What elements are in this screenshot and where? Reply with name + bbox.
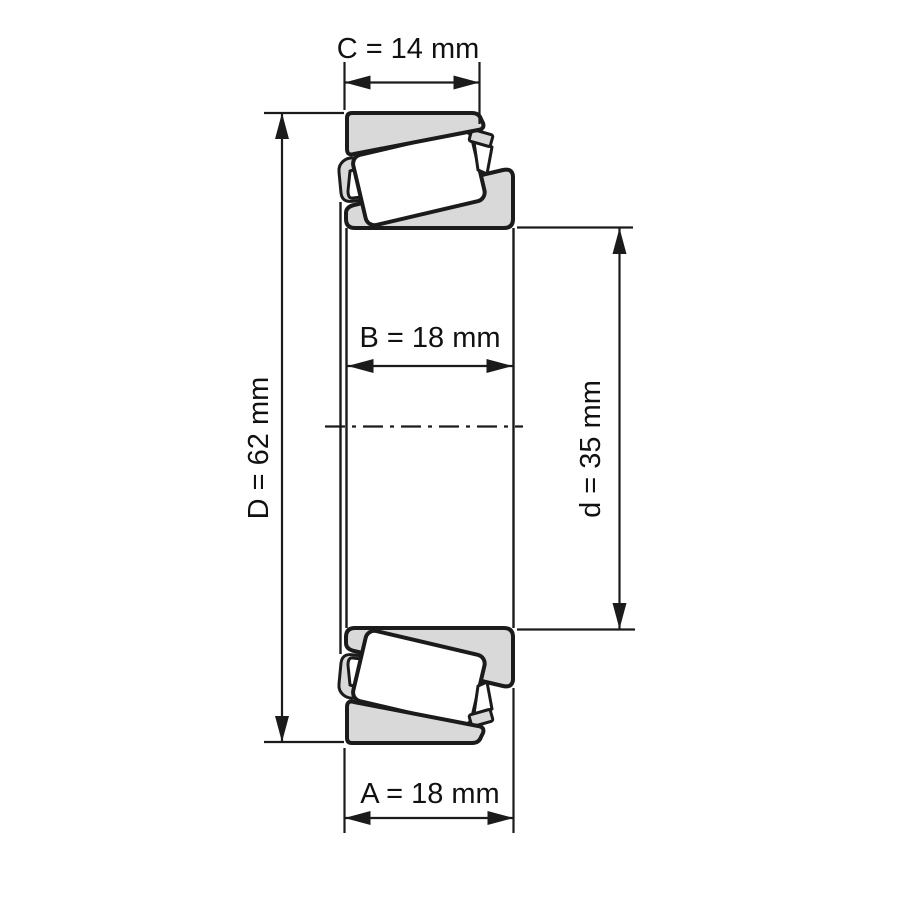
bearing-diagram-svg: C = 14 mm D = 62 mm B = 18 mm d = 35 mm … <box>0 0 900 900</box>
dimension-B-label: B = 18 mm <box>359 322 500 354</box>
dimension-C-label: C = 14 mm <box>337 33 480 65</box>
arrowhead-right <box>487 359 513 373</box>
arrowhead-left <box>345 76 371 90</box>
dimension-D-label: D = 62 mm <box>243 377 275 520</box>
bearing-bottom-half <box>339 628 513 743</box>
dimension-C: C = 14 mm <box>337 33 480 124</box>
dimension-A-label: A = 18 mm <box>360 778 499 810</box>
arrowhead-left <box>345 811 371 825</box>
dimension-d-label: d = 35 mm <box>575 380 607 518</box>
dimension-B: B = 18 mm <box>348 322 513 373</box>
arrowhead-right <box>488 811 514 825</box>
bearing-dimension-drawing: C = 14 mm D = 62 mm B = 18 mm d = 35 mm … <box>0 0 900 900</box>
arrowhead-down <box>613 603 627 629</box>
arrowhead-down <box>275 716 289 742</box>
arrowhead-right <box>454 76 480 90</box>
arrowhead-up <box>275 113 289 139</box>
dimension-d: d = 35 mm <box>517 228 635 630</box>
arrowhead-left <box>348 359 374 373</box>
bearing-top-half <box>339 113 513 228</box>
arrowhead-up <box>613 228 627 254</box>
